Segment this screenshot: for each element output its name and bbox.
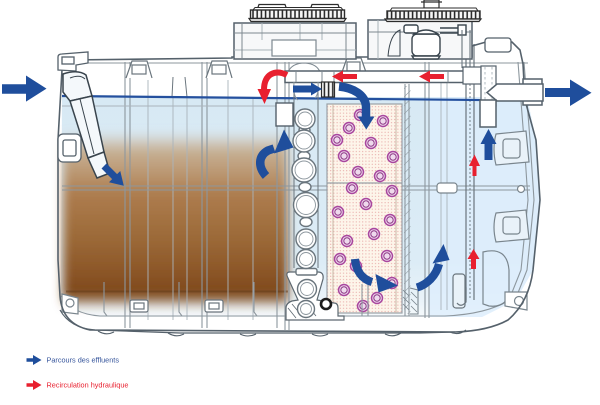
svg-text:Parcours des effluents: Parcours des effluents xyxy=(47,356,120,365)
svg-text:Recirculation hydraulique: Recirculation hydraulique xyxy=(47,381,129,390)
